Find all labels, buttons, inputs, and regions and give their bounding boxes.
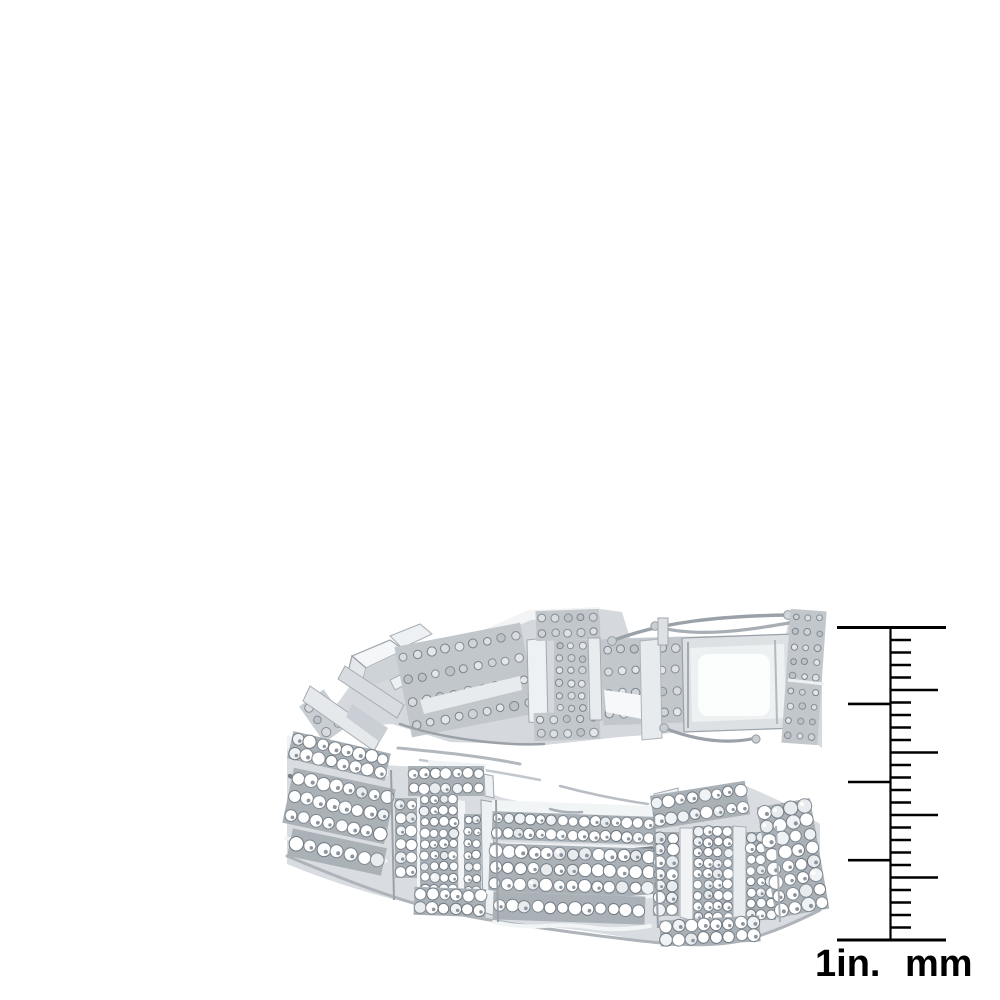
svg-text:mm: mm xyxy=(905,943,973,985)
svg-text:1in.: 1in. xyxy=(815,943,880,985)
